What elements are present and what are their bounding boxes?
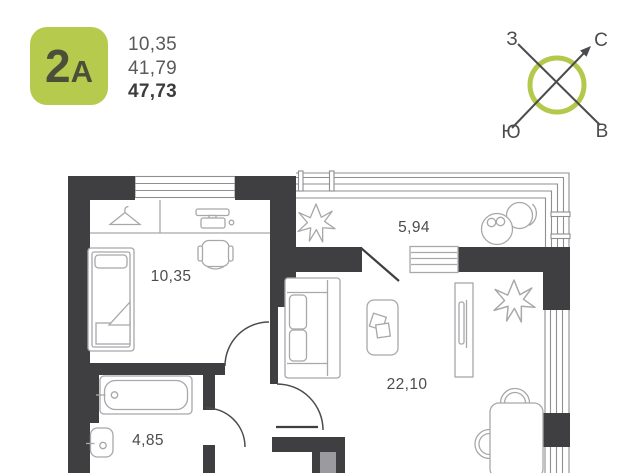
hanger-icon [110, 213, 140, 225]
room-label-balcony: 5,94 [398, 219, 430, 236]
glazing-mullion [330, 171, 335, 191]
floorplan-card: 2 А 10,35 41,79 47,73 З С Ю В [0, 0, 640, 473]
glazing-mullion [299, 171, 304, 191]
blanket [96, 323, 130, 344]
closet-divider [90, 200, 270, 233]
bathtub [96, 376, 192, 414]
plant-icon [298, 204, 335, 242]
living-door-arc [277, 384, 323, 430]
bedroom-door-arc [225, 322, 269, 366]
floor-plan: 10,35 5,94 22,10 4,85 [0, 0, 640, 473]
bed [88, 248, 134, 351]
mouse [229, 220, 234, 225]
room-label-bedroom: 10,35 [151, 268, 192, 285]
plant-icon [494, 280, 535, 322]
bathroom-door-arc [206, 408, 245, 447]
glazing-mullion [551, 212, 570, 217]
office-chair [202, 241, 229, 267]
tv-stand [455, 283, 473, 377]
room-label-living: 22,10 [387, 376, 428, 393]
entry-door-slab [320, 452, 336, 473]
room-label-bathroom: 4,85 [132, 432, 164, 449]
balcony-cabinet [410, 247, 458, 273]
dining-table [490, 403, 543, 473]
glazing-mullion [551, 234, 570, 239]
desk-unit [201, 218, 225, 228]
washbasin [86, 428, 113, 457]
dining-chair-top [501, 389, 530, 404]
desk-monitor [196, 209, 229, 216]
balcony-door-leaf [361, 248, 399, 281]
pillow [95, 255, 127, 268]
sofa [285, 278, 340, 378]
dining-chair-left [475, 430, 490, 459]
coffee-table [367, 300, 398, 355]
living-window-right [545, 310, 569, 473]
bedroom-window [135, 177, 235, 198]
